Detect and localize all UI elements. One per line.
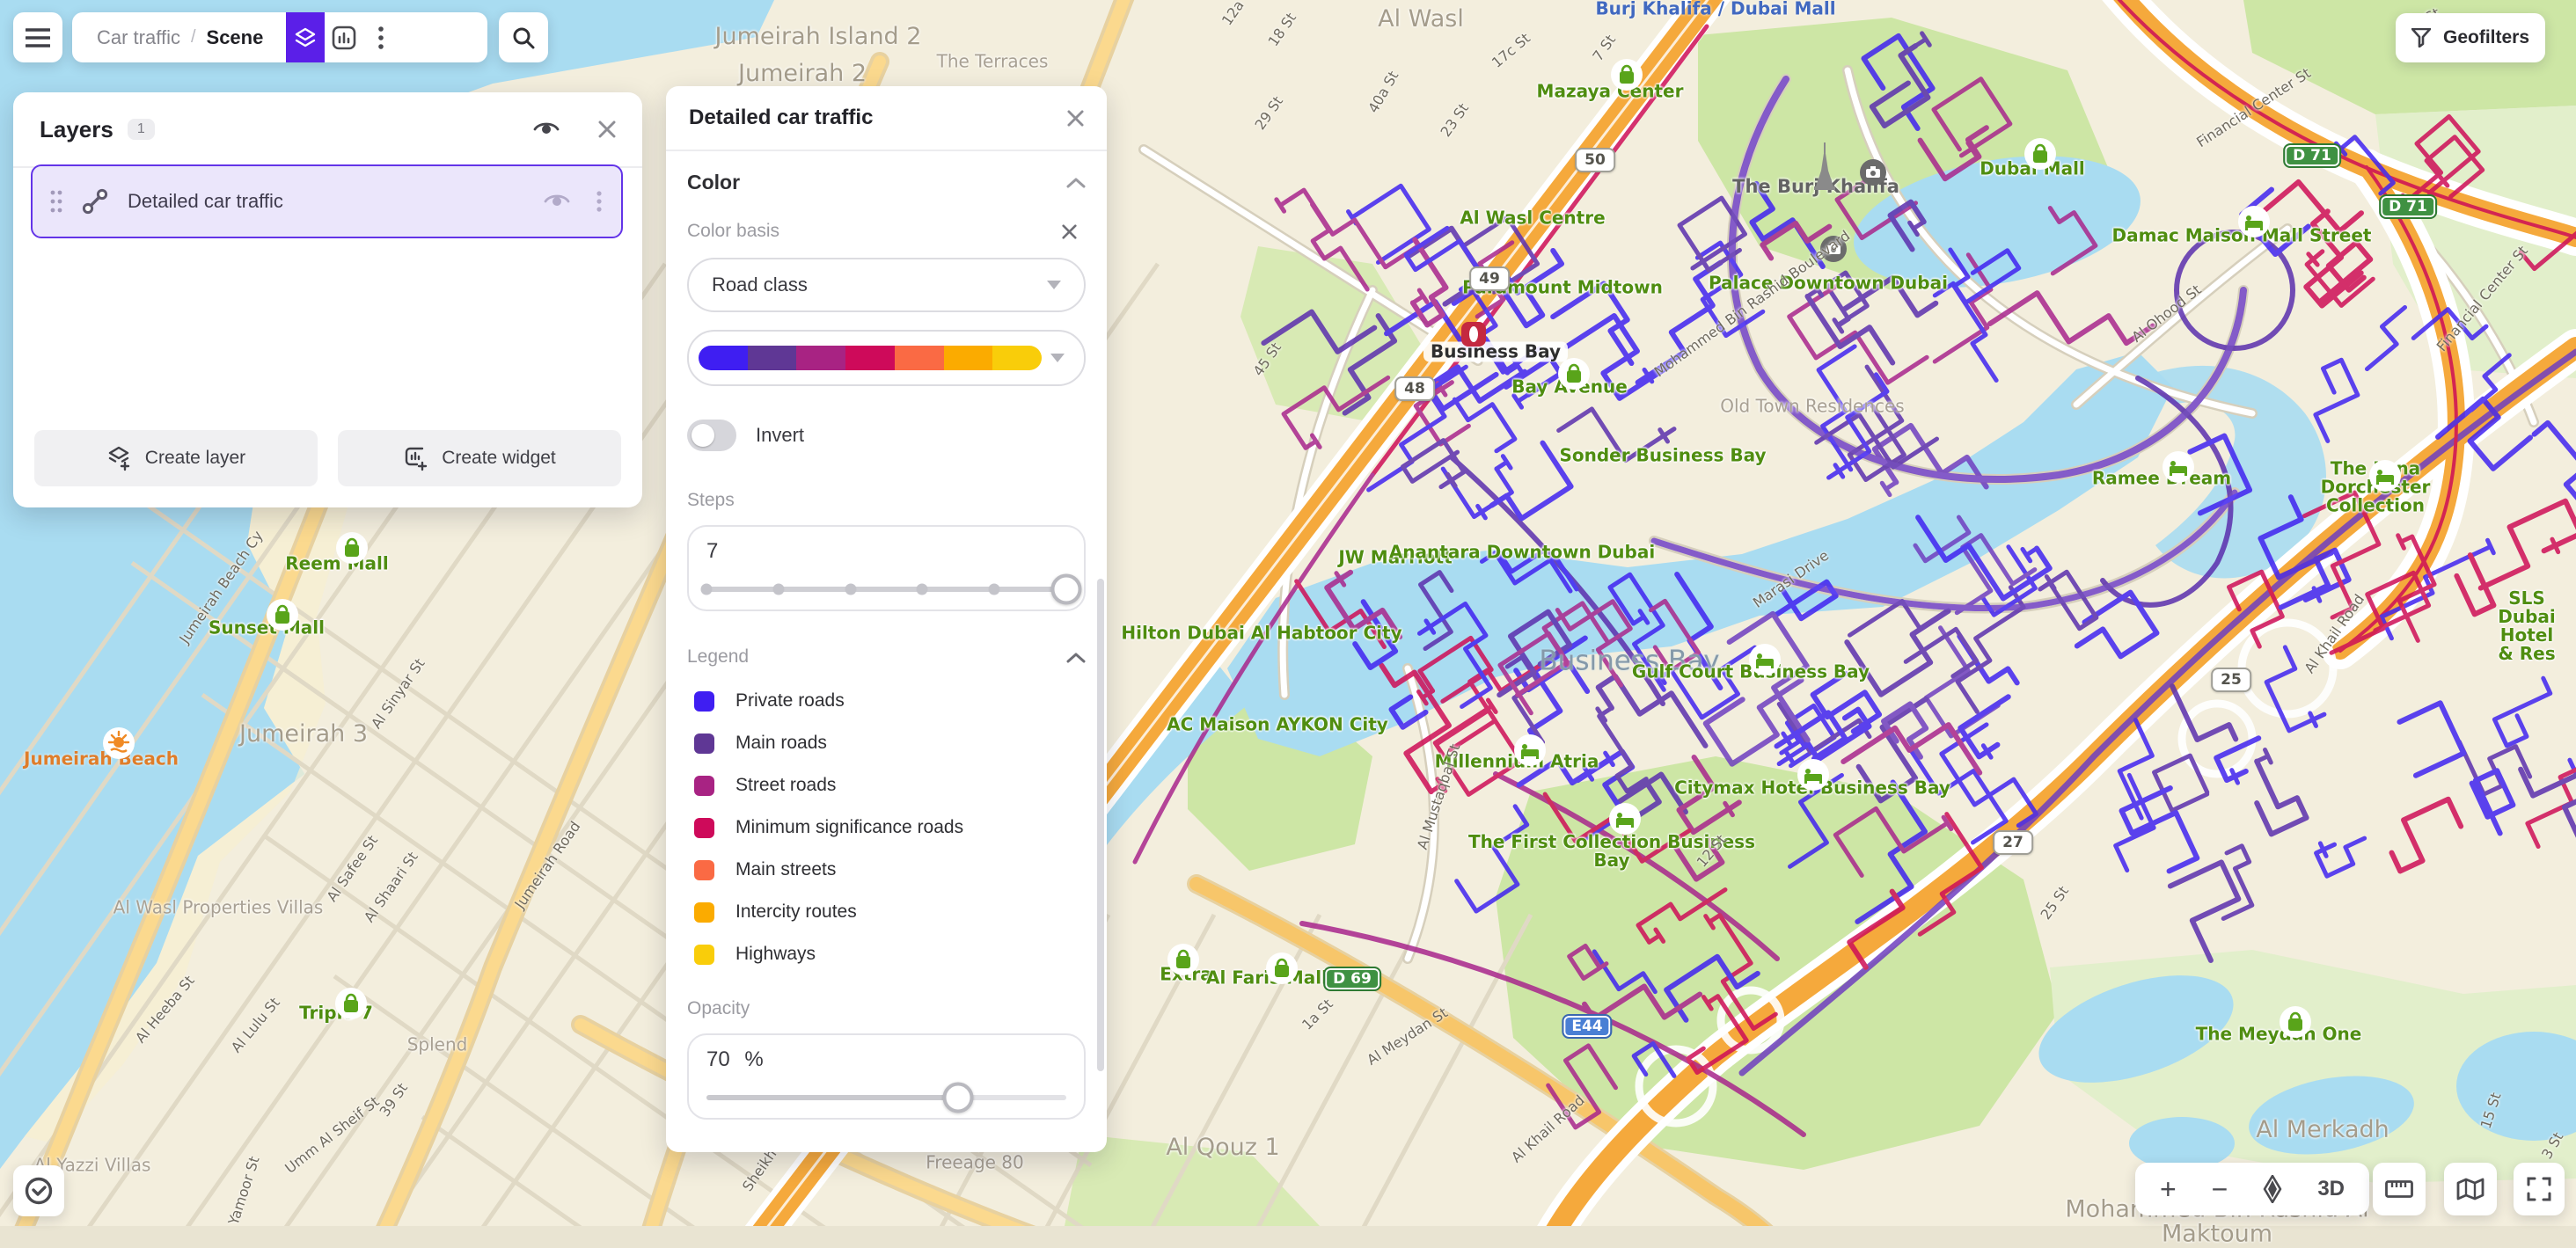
steps-slider-handle[interactable] bbox=[1051, 574, 1082, 605]
opacity-slider-handle[interactable] bbox=[943, 1083, 974, 1113]
line-layer-icon bbox=[82, 188, 108, 215]
search-button[interactable] bbox=[499, 12, 548, 62]
search-icon bbox=[512, 26, 535, 49]
kebab-icon bbox=[596, 191, 602, 212]
legend-item-2: Street roads bbox=[687, 764, 1086, 806]
geofilters-label: Geofilters bbox=[2443, 27, 2529, 48]
steps-value: 7 bbox=[706, 539, 1066, 564]
more-options-button[interactable] bbox=[363, 12, 399, 62]
create-layer-icon bbox=[106, 445, 133, 471]
chevron-up-icon[interactable] bbox=[1066, 177, 1086, 188]
clear-color-basis-icon[interactable] bbox=[1062, 224, 1077, 239]
legend-item-label: Main roads bbox=[735, 733, 827, 754]
legend-swatch bbox=[694, 818, 714, 838]
settings-scrollbar[interactable] bbox=[1097, 579, 1104, 1071]
legend-item-0: Private roads bbox=[687, 680, 1086, 722]
legend-item-5: Intercity routes bbox=[687, 891, 1086, 933]
layer-visibility-button[interactable] bbox=[544, 193, 570, 210]
color-basis-label: Color basis bbox=[687, 221, 779, 242]
create-layer-label: Create layer bbox=[145, 448, 245, 469]
legend-item-label: Private roads bbox=[735, 690, 845, 712]
layers-panel-header: Layers 1 bbox=[13, 92, 642, 168]
legend-section-header[interactable]: Legend bbox=[687, 646, 1086, 668]
layers-icon bbox=[294, 26, 317, 49]
layer-settings-panel: Detailed car traffic Color Color basis R… bbox=[666, 86, 1107, 1152]
legend-item-label: Main streets bbox=[735, 859, 836, 880]
legend-item-label: Street roads bbox=[735, 775, 836, 796]
steps-control: 7 bbox=[687, 525, 1086, 611]
palette-select[interactable] bbox=[687, 330, 1086, 386]
legend-item-label: Minimum significance roads bbox=[735, 817, 963, 838]
ruler-icon bbox=[2385, 1180, 2413, 1198]
legend-item-6: Highways bbox=[687, 933, 1086, 975]
legend-item-3: Minimum significance roads bbox=[687, 806, 1086, 849]
toggle-all-visibility-button[interactable] bbox=[533, 120, 560, 138]
gradient-segment bbox=[944, 346, 993, 370]
steps-label: Steps bbox=[687, 490, 1086, 511]
breadcrumb-project[interactable]: Car traffic bbox=[72, 26, 180, 49]
mode-3d-button[interactable]: 3D bbox=[2317, 1177, 2345, 1201]
kebab-icon bbox=[378, 26, 384, 49]
fullscreen-icon bbox=[2527, 1177, 2551, 1201]
hamburger-icon bbox=[26, 28, 50, 47]
color-section-label: Color bbox=[687, 171, 740, 194]
create-layer-button[interactable]: Create layer bbox=[34, 430, 318, 486]
zoom-out-button[interactable]: − bbox=[2212, 1173, 2228, 1206]
create-widget-icon bbox=[403, 445, 429, 471]
clock-icon bbox=[24, 1176, 54, 1206]
basemap-button[interactable] bbox=[2444, 1163, 2497, 1215]
gradient-segment bbox=[845, 346, 895, 370]
layers-panel-title: Layers bbox=[40, 116, 113, 143]
color-basis-row: Color basis bbox=[687, 221, 1086, 242]
close-icon bbox=[1067, 110, 1084, 127]
widgets-button[interactable] bbox=[325, 12, 363, 62]
opacity-control: 70 % bbox=[687, 1033, 1086, 1120]
compass-button[interactable] bbox=[2263, 1175, 2282, 1203]
legend-swatch bbox=[694, 733, 714, 754]
drag-handle-icon[interactable] bbox=[50, 190, 62, 213]
settings-panel-title: Detailed car traffic bbox=[689, 106, 873, 130]
settings-panel-header: Detailed car traffic bbox=[666, 86, 1107, 151]
layers-panel: Layers 1 Detailed car traffic bbox=[13, 92, 642, 507]
color-section-header[interactable]: Color bbox=[687, 171, 1086, 194]
geofilters-button[interactable]: Geofilters bbox=[2396, 13, 2545, 62]
legend-item-1: Main roads bbox=[687, 722, 1086, 764]
steps-slider-track[interactable] bbox=[706, 587, 1066, 592]
legend-swatch bbox=[694, 776, 714, 796]
opacity-unit: % bbox=[744, 1047, 763, 1071]
breadcrumb-current: Scene bbox=[207, 26, 264, 49]
legend-label: Legend bbox=[687, 646, 749, 668]
opacity-label: Opacity bbox=[687, 998, 1086, 1019]
layer-options-button[interactable] bbox=[596, 191, 602, 212]
eye-icon bbox=[533, 120, 560, 138]
legend-item-label: Highways bbox=[735, 944, 816, 965]
invert-toggle[interactable] bbox=[687, 420, 736, 451]
gradient-segment bbox=[895, 346, 944, 370]
settings-panel-close-button[interactable] bbox=[1067, 110, 1084, 127]
layers-count-badge: 1 bbox=[128, 119, 155, 140]
gradient-segment bbox=[796, 346, 845, 370]
color-gradient-bar bbox=[699, 346, 1042, 370]
legend-swatch bbox=[694, 945, 714, 965]
map-nav-controls: + − 3D bbox=[2135, 1163, 2369, 1215]
fullscreen-button[interactable] bbox=[2514, 1163, 2565, 1215]
chart-icon bbox=[332, 26, 356, 50]
gradient-segment bbox=[699, 346, 748, 370]
color-basis-value: Road class bbox=[712, 274, 808, 296]
chevron-up-icon[interactable] bbox=[1066, 652, 1086, 663]
opacity-value: 70 bbox=[706, 1047, 730, 1071]
legend-item-label: Intercity routes bbox=[735, 901, 857, 923]
measure-button[interactable] bbox=[2373, 1163, 2426, 1215]
legend-swatch bbox=[694, 691, 714, 712]
zoom-in-button[interactable]: + bbox=[2160, 1173, 2177, 1206]
invert-label: Invert bbox=[756, 424, 804, 447]
main-menu-button[interactable] bbox=[13, 12, 62, 62]
funnel-icon bbox=[2411, 28, 2431, 47]
gradient-segment bbox=[992, 346, 1042, 370]
eye-icon bbox=[544, 193, 570, 210]
chevron-down-icon bbox=[1047, 281, 1061, 289]
toolbar: Car traffic / Scene bbox=[72, 12, 487, 62]
create-widget-button[interactable]: Create widget bbox=[338, 430, 621, 486]
opacity-slider-track[interactable] bbox=[706, 1095, 1066, 1100]
layers-toggle-button[interactable] bbox=[286, 12, 325, 62]
map-icon bbox=[2456, 1178, 2485, 1201]
breadcrumb-separator: / bbox=[180, 27, 207, 47]
layer-item-detailed-car-traffic[interactable]: Detailed car traffic bbox=[31, 164, 623, 238]
gradient-segment bbox=[748, 346, 797, 370]
color-basis-select[interactable]: Road class bbox=[687, 258, 1086, 312]
invert-row: Invert bbox=[687, 420, 1086, 451]
layer-name: Detailed car traffic bbox=[128, 190, 283, 213]
legend-swatch bbox=[694, 902, 714, 923]
legend-swatch bbox=[694, 860, 714, 880]
legend-list: Private roadsMain roadsStreet roadsMinim… bbox=[687, 680, 1086, 975]
chevron-down-icon bbox=[1050, 354, 1065, 362]
layers-panel-close-button[interactable] bbox=[598, 120, 616, 138]
legend-item-4: Main streets bbox=[687, 849, 1086, 891]
time-filter-button[interactable] bbox=[13, 1165, 64, 1216]
close-icon bbox=[598, 120, 616, 138]
create-widget-label: Create widget bbox=[442, 448, 556, 469]
